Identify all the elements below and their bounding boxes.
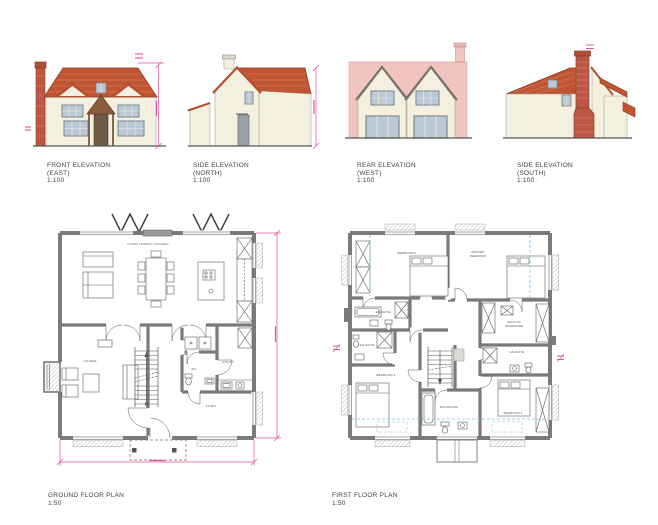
room-label-ensuite-3: EN-SUITE [510, 350, 525, 354]
room-label-study: STUDY [206, 404, 217, 408]
south-elevation-drawing [498, 36, 640, 150]
room-label-lounge: LOUNGE [83, 359, 96, 363]
upper-window [562, 95, 571, 106]
utility-fixtures [217, 328, 252, 389]
elevation-title: SIDE ELEVATION [517, 162, 573, 170]
bifold-lintel [143, 230, 172, 236]
rooflight [548, 80, 557, 88]
lean-to [188, 103, 210, 146]
glazed-doors-right [414, 116, 447, 138]
plan-title: FIRST FLOOR PLAN [332, 492, 398, 500]
ground-floor-plan-drawing: LIVING / DINING / KITCHEN LOUNGE WC UTIL… [35, 208, 305, 476]
main-roof-plane [506, 68, 578, 94]
plan-title: GROUND FLOOR PLAN [48, 492, 124, 500]
boot-room-fixtures [185, 337, 211, 349]
chimney [223, 55, 236, 69]
right-wall [259, 91, 311, 146]
caption-south-elevation: SIDE ELEVATION (SOUTH) 1:100 [517, 162, 573, 185]
bathroom-fixtures [422, 393, 467, 433]
room-label-living: LIVING / DINING / KITCHEN [127, 242, 168, 246]
porch [130, 440, 186, 460]
caption-front-elevation: FRONT ELEVATION (EAST) 1:100 [47, 162, 110, 185]
caption-first-floor-plan: FIRST FLOOR PLAN 1:50 [332, 492, 398, 507]
ground-window-left [64, 121, 88, 136]
master-furniture [507, 256, 545, 298]
lounge-furniture [62, 340, 138, 399]
upper-window-right [118, 105, 139, 117]
upper-window-right [416, 91, 439, 105]
upper-window-left [62, 105, 83, 117]
stairs [135, 347, 158, 407]
elevation-scale: 1:100 [357, 177, 416, 185]
upper-window-left [371, 91, 394, 105]
elevation-subtitle: (SOUTH) [517, 170, 573, 178]
dimension-lines [313, 65, 319, 149]
front-elevation-drawing [25, 46, 175, 152]
elevation-title: FRONT ELEVATION [47, 162, 110, 170]
bedroom3-furniture [356, 383, 389, 427]
chimney [454, 43, 466, 62]
elevation-title: SIDE ELEVATION [193, 162, 249, 170]
elevation-subtitle: (NORTH) [193, 170, 249, 178]
rear-elevation-drawing [341, 38, 476, 150]
room-label-wardrobe-2: WARDROBE [505, 324, 523, 328]
room-label-ensuite-2: EN-SUITE [360, 343, 375, 347]
elevation-scale: 1:100 [193, 177, 249, 185]
room-label-ensuite-1: EN-SUITE [376, 310, 391, 314]
caption-north-elevation: SIDE ELEVATION (NORTH) 1:100 [193, 162, 249, 185]
roof-window [96, 83, 106, 93]
kitchen-island [198, 262, 224, 300]
porch-post [172, 448, 177, 453]
wc-fixtures [185, 374, 214, 385]
elevation-subtitle: (WEST) [357, 170, 416, 178]
stairs [428, 347, 464, 387]
room-label-bathroom: BATHROOM [440, 405, 458, 409]
room-label-bedroom3: BEDROOM 3 [377, 373, 396, 377]
ground-window-right [118, 121, 144, 136]
ensuite3-fixtures [483, 348, 532, 373]
dimension-marks [586, 45, 594, 49]
elevation-subtitle: (EAST) [47, 170, 110, 178]
side-door [236, 114, 249, 146]
porch-post [132, 448, 137, 453]
stair-rooflight [454, 349, 464, 361]
room-label-master-2: BEDROOM [470, 254, 487, 258]
caption-rear-elevation: REAR ELEVATION (WEST) 1:100 [357, 162, 416, 185]
caption-ground-floor-plan: GROUND FLOOR PLAN 1:50 [48, 492, 124, 507]
room-label-wc: WC [191, 367, 197, 371]
room-label-bedroom4: BEDROOM 4 [504, 411, 523, 415]
drawing-sheet: { "drawing": { "background": "#ffffff", … [0, 0, 658, 525]
kitchen-units [237, 238, 252, 322]
gable-window [245, 92, 253, 104]
room-label-bedroom2: BEDROOM 2 [398, 251, 417, 255]
dining-table [138, 251, 174, 307]
room-label-utility: UTILITY [222, 360, 234, 364]
chimney [574, 51, 594, 138]
north-elevation-drawing [183, 48, 323, 152]
bay-window [44, 362, 62, 392]
plan-scale: 1:50 [332, 500, 398, 508]
elevation-scale: 1:100 [517, 177, 573, 185]
porch-roof [437, 440, 477, 462]
plan-scale: 1:50 [48, 500, 124, 508]
rooflight-symbols [112, 214, 229, 232]
chimney [35, 62, 46, 146]
bedroom4-furniture [498, 380, 549, 432]
glazed-doors-left [366, 116, 399, 138]
elevation-scale: 1:100 [47, 177, 110, 185]
elevation-title: REAR ELEVATION [357, 162, 416, 170]
first-floor-plan-drawing: BEDROOM 2 MASTER BEDROOM EN-SUITE WALK-I… [325, 208, 575, 476]
living-furniture [83, 252, 113, 298]
